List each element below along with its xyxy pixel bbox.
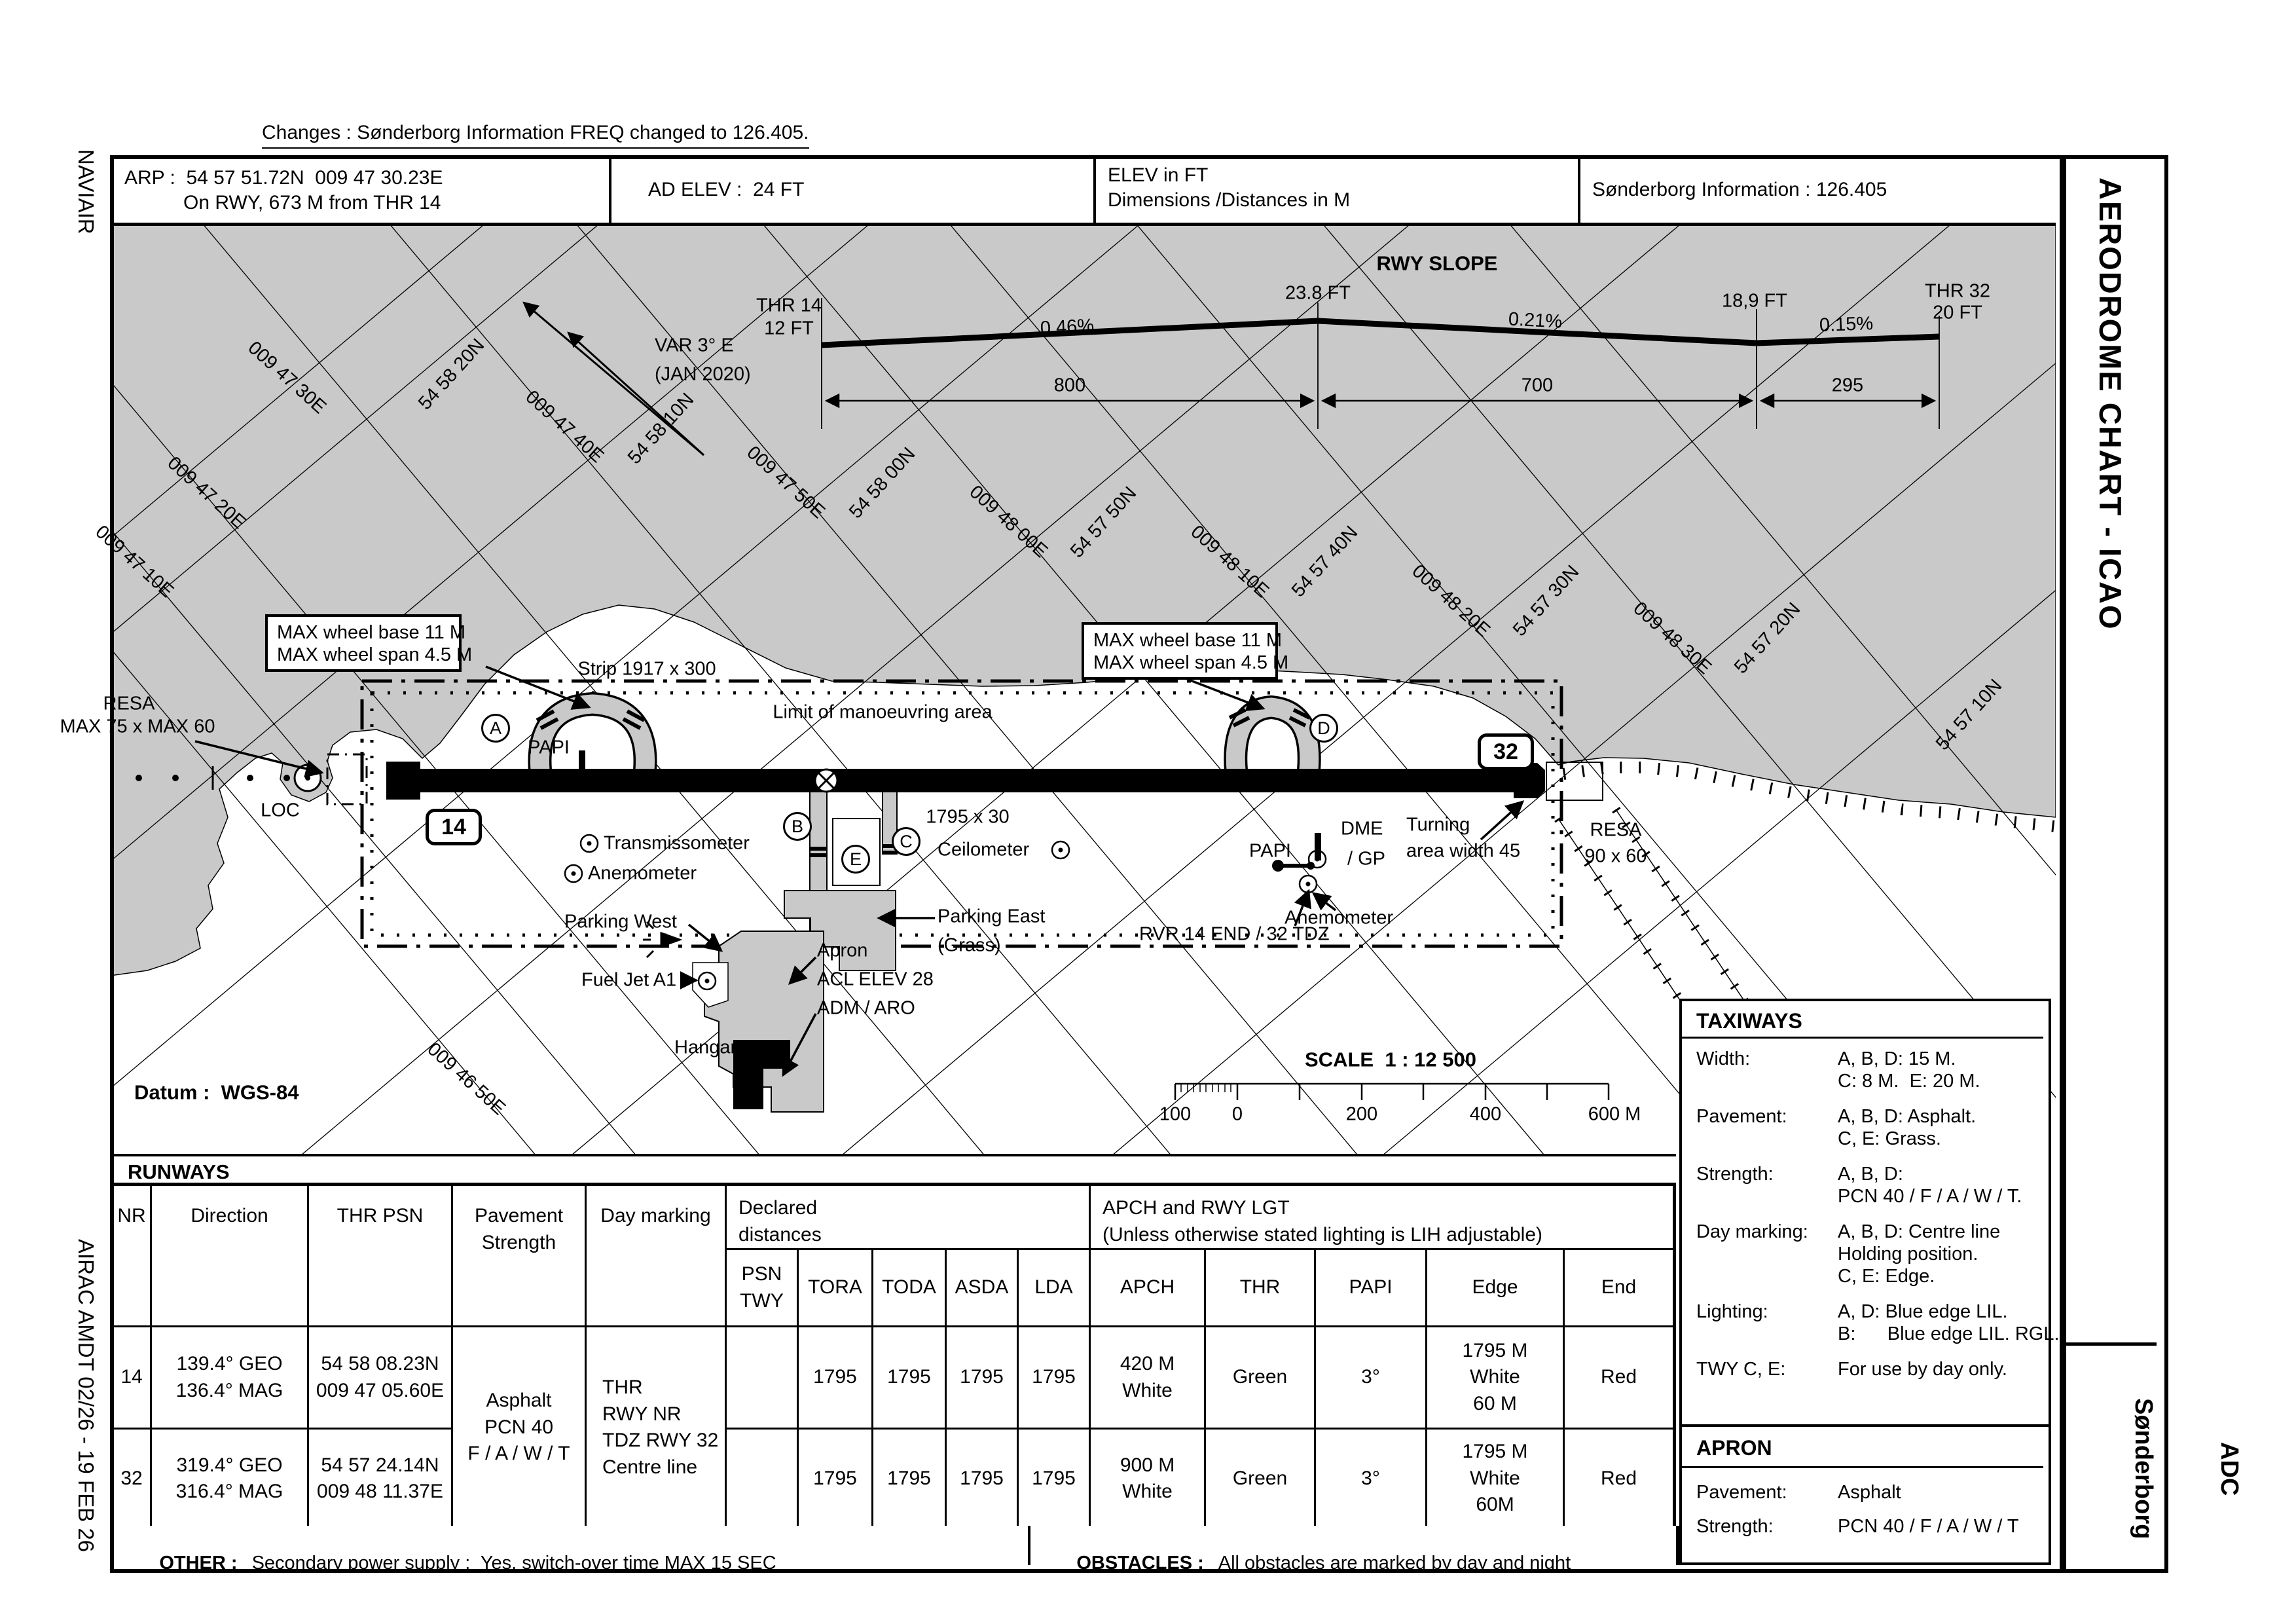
- rwy14-thr: Green: [1205, 1327, 1315, 1429]
- max-wheel-base: MAX wheel base 11 M: [277, 623, 465, 642]
- rwy32-direction: 319.4° GEO316.4° MAG: [151, 1429, 308, 1530]
- right-column-divider: [2066, 1342, 2157, 1346]
- parking-east-label1: Parking East: [938, 908, 1045, 927]
- parking-east-label2: (Grass): [938, 936, 1001, 955]
- taxiways-pavement-label: Pavement:: [1696, 1106, 1787, 1128]
- sub-toda: TODA: [873, 1249, 946, 1327]
- max-wheel-box-east: MAX wheel base 11 M MAX wheel span 4.5 M: [1082, 622, 1278, 680]
- apron-label2: ACL ELEV 28: [817, 970, 934, 989]
- chart-id-line2: ADC: [2214, 1377, 2243, 1560]
- scale-tick-600: 600 M: [1588, 1105, 1641, 1124]
- header-cell-info: Sønderborg Information : 126.405: [1578, 155, 2056, 223]
- apron-label3: ADM / ARO: [817, 999, 915, 1018]
- rwy32-apch: 900 MWhite: [1090, 1429, 1205, 1530]
- rwy14-lda: 1795: [1018, 1327, 1090, 1429]
- slope-grad2: 0.21%: [1508, 310, 1563, 331]
- other-label: OTHER :: [159, 1553, 237, 1574]
- col-declared: Declareddistances: [726, 1185, 1090, 1249]
- changes-note: Changes : Sønderborg Information FREQ ch…: [262, 122, 809, 149]
- taxiways-lighting-1: A, D: Blue edge LIL.: [1838, 1301, 2008, 1323]
- papi-east-label: PAPI: [1249, 842, 1291, 861]
- rwy32-thr: Green: [1205, 1429, 1315, 1530]
- runway-strip: [391, 769, 1514, 792]
- dme-label2: / GP: [1347, 850, 1385, 869]
- slope-dist2: 700: [1522, 377, 1553, 396]
- scale-title: SCALE 1 : 12 500: [1305, 1050, 1476, 1070]
- rwy14-end: Red: [1564, 1327, 1675, 1429]
- chart-id-line3: Sønderborg: [2128, 1377, 2157, 1560]
- taxiways-pavement-2: C, E: Grass.: [1838, 1128, 1941, 1150]
- apron-area: [704, 931, 824, 1112]
- slope-thr14: THR 14: [756, 297, 822, 316]
- rwy32-psn: 54 57 24.14N009 48 11.37E: [308, 1429, 452, 1530]
- units-line1: ELEV in FT: [1108, 164, 1208, 187]
- max-wheel-span: MAX wheel span 4.5 M: [277, 646, 472, 665]
- footer-divider: [1028, 1526, 1030, 1565]
- taxiways-width-label: Width:: [1696, 1048, 1750, 1070]
- taxiways-strength-label: Strength:: [1696, 1164, 1774, 1185]
- runways-table: NR Direction THR PSN PavementStrength Da…: [110, 1183, 1676, 1531]
- resa-east-label1: RESA: [1590, 821, 1642, 840]
- taxiways-lighting-label: Lighting:: [1696, 1301, 1768, 1323]
- taxiways-title-divider: [1682, 1037, 2043, 1039]
- scale-tick-100: 100: [1159, 1105, 1191, 1124]
- scale-bar: [1175, 1084, 1609, 1100]
- taxiways-daymarking-1: A, B, D: Centre line: [1838, 1221, 2000, 1243]
- header-cell-units: ELEV in FT Dimensions /Distances in M: [1093, 155, 1580, 223]
- runway-dim-label: 1795 x 30: [926, 808, 1009, 827]
- resa-east-label2: 90 x 60: [1584, 847, 1647, 866]
- limit-label: Limit of manoeuvring area: [773, 703, 992, 722]
- right-title-column: AERODROME CHART - ICAO AD 2 - EKSB ADC S…: [2062, 155, 2168, 1573]
- sub-thr: THR: [1205, 1249, 1315, 1327]
- max-wheel-box-west: MAX wheel base 11 M MAX wheel span 4.5 M: [265, 614, 462, 672]
- taxiways-title: TAXIWAYS: [1696, 1009, 1802, 1033]
- taxiway-d-loop: [1235, 707, 1309, 770]
- aerodrome-chart-page: ARP : 54 57 51.72N 009 47 30.23E On RWY,…: [0, 0, 2296, 1624]
- thr14-designator: 14: [426, 809, 482, 845]
- max-wheel-span: MAX wheel span 4.5 M: [1093, 654, 1288, 673]
- slope-peak-elev: 23.8 FT: [1285, 284, 1351, 303]
- rwy32-tora: 1795: [798, 1429, 873, 1530]
- rwy32-asda: 1795: [946, 1429, 1018, 1530]
- rwy14-tora: 1795: [798, 1327, 873, 1429]
- sub-apch: APCH: [1090, 1249, 1205, 1327]
- rwy14-psn-twy: [726, 1327, 798, 1429]
- obstacles-text: All obstacles are marked by day and nigh…: [1218, 1553, 1571, 1574]
- resa-west-label2: MAX 75 x MAX 60: [60, 718, 215, 737]
- parking-west-label: Parking West: [564, 913, 677, 932]
- taxiways-width-2: C: 8 M. E: 20 M.: [1838, 1071, 1980, 1092]
- apron-pavement-label: Pavement:: [1696, 1482, 1787, 1504]
- col-pavement: PavementStrength: [452, 1185, 586, 1327]
- airac-vertical: AIRAC AMDT 02/26 - 19 FEB 26: [73, 1239, 98, 1552]
- strip-label: Strip 1917 x 300: [577, 660, 716, 679]
- slope-dist1: 800: [1054, 377, 1085, 396]
- turning-label1: Turning: [1406, 816, 1470, 835]
- col-daymarking: Day marking: [586, 1185, 726, 1327]
- col-nr: NR: [112, 1185, 151, 1327]
- other-cell: OTHER :Secondary power supply : Yes, swi…: [128, 1535, 776, 1592]
- slope-thr32: THR 32: [1925, 282, 1990, 301]
- apron-panel: APRON Pavement: Asphalt Strength: PCN 40…: [1679, 1424, 2051, 1565]
- chart-title-vertical: AERODROME CHART - ICAO: [2092, 177, 2128, 631]
- apron-strength-label: Strength:: [1696, 1516, 1774, 1538]
- var-line1: VAR 3° E: [655, 337, 734, 356]
- rwy14-nr: 14: [112, 1327, 151, 1429]
- resa-right-box: [1546, 762, 1603, 800]
- taxiways-twyce-label: TWY C, E:: [1696, 1359, 1785, 1380]
- header-cell-elev: AD ELEV : 24 FT: [609, 155, 1096, 223]
- chart-id-vertical: AD 2 - EKSB ADC Sønderborg: [2071, 1377, 2296, 1560]
- taxiways-twyce-1: For use by day only.: [1838, 1359, 2007, 1380]
- col-apch-group: APCH and RWY LGT(Unless otherwise stated…: [1090, 1185, 1675, 1249]
- obstacles-cell: OBSTACLES :All obstacles are marked by d…: [1045, 1535, 1571, 1592]
- naviair-vertical: NAVIAIR: [73, 149, 98, 234]
- taxiway-d-badge: D: [1309, 714, 1338, 743]
- papi-bar-west: [579, 750, 585, 777]
- slope-mid-elev: 18,9 FT: [1722, 292, 1787, 311]
- anemometer-west-label: Anemometer: [588, 864, 697, 883]
- col-direction: Direction: [151, 1185, 308, 1327]
- crossed-circle-symbol: [815, 769, 837, 792]
- var-line2: (JAN 2020): [655, 365, 751, 384]
- header-cell-arp: ARP : 54 57 51.72N 009 47 30.23E On RWY,…: [110, 155, 611, 223]
- rwy32-lda: 1795: [1018, 1429, 1090, 1530]
- obstacles-label: OBSTACLES :: [1076, 1553, 1203, 1574]
- taxiways-width-1: A, B, D: 15 M.: [1838, 1048, 1956, 1070]
- loc-label: LOC: [261, 802, 300, 821]
- runways-title-band: RUNWAYS: [110, 1154, 1676, 1185]
- fuel-label: Fuel Jet A1: [581, 971, 676, 990]
- pavement-shared: AsphaltPCN 40 F / A / W / T: [452, 1327, 586, 1530]
- taxiways-strength-1: A, B, D:: [1838, 1164, 1903, 1185]
- rwy32-toda: 1795: [873, 1429, 946, 1530]
- papi-west-label: PAPI: [528, 739, 570, 758]
- rwy14-edge: 1795 MWhite 60 M: [1427, 1327, 1564, 1429]
- daymarking-shared: THRRWY NR TDZ RWY 32Centre line: [586, 1327, 726, 1530]
- transmissometer-label: Transmissometer: [604, 834, 750, 853]
- rwy32-edge: 1795 MWhite 60M: [1427, 1429, 1564, 1530]
- taxiways-lighting-2: B: Blue edge LIL. RGL.: [1838, 1323, 2060, 1345]
- taxiways-panel: TAXIWAYS Width: A, B, D: 15 M. C: 8 M. E…: [1679, 999, 2051, 1430]
- taxiways-strength-2: PCN 40 / F / A / W / T.: [1838, 1186, 2022, 1208]
- taxiways-daymarking-label: Day marking:: [1696, 1221, 1808, 1243]
- apron-label1: Apron: [817, 942, 867, 961]
- units-line2: Dimensions /Distances in M: [1108, 189, 1350, 212]
- resa-west-label1: RESA: [103, 695, 155, 714]
- slope-thr32-elev: 20 FT: [1933, 304, 1982, 323]
- rwy32-papi: 3°: [1315, 1429, 1427, 1530]
- sub-edge: Edge: [1427, 1249, 1564, 1327]
- taxiways-daymarking-3: C, E: Edge.: [1838, 1266, 1935, 1287]
- datum-label: Datum : WGS-84: [134, 1082, 299, 1103]
- arp-line1: ARP : 54 57 51.72N 009 47 30.23E: [124, 167, 443, 189]
- thr32-designator: 32: [1478, 733, 1534, 770]
- sub-asda: ASDA: [946, 1249, 1018, 1327]
- rwy14-papi: 3°: [1315, 1327, 1427, 1429]
- taxiway-c-badge: C: [892, 827, 920, 856]
- scale-tick-200: 200: [1346, 1105, 1377, 1124]
- rwy14-asda: 1795: [946, 1327, 1018, 1429]
- col-thr-psn: THR PSN: [308, 1185, 452, 1327]
- turning-label2: area width 45: [1406, 842, 1520, 861]
- slope-dist3: 295: [1832, 377, 1863, 396]
- slope-title: RWY SLOPE: [1377, 253, 1498, 274]
- rwy14-toda: 1795: [873, 1327, 946, 1429]
- ceilometer-label: Ceilometer: [938, 841, 1029, 860]
- rwy32-nr: 32: [112, 1429, 151, 1530]
- other-text: Secondary power supply : Yes, switch-ove…: [252, 1553, 776, 1574]
- taxiways-pavement-1: A, B, D: Asphalt.: [1838, 1106, 1976, 1128]
- apron-title-divider: [1682, 1466, 2043, 1468]
- rwy14-direction: 139.4° GEO136.4° MAG: [151, 1327, 308, 1429]
- slope-grad3: 0.15%: [1819, 314, 1873, 335]
- apron-pavement-value: Asphalt: [1838, 1482, 1901, 1504]
- sub-end: End: [1564, 1249, 1675, 1327]
- slope-thr14-elev: 12 FT: [764, 320, 814, 339]
- rwy14-psn: 54 58 08.23N009 47 05.60E: [308, 1327, 452, 1429]
- arp-line2: On RWY, 673 M from THR 14: [183, 192, 441, 214]
- sub-psn-twy: PSNTWY: [726, 1249, 798, 1327]
- footer-band: OTHER :Secondary power supply : Yes, swi…: [110, 1526, 1679, 1565]
- taxiways-daymarking-2: Holding position.: [1838, 1244, 1978, 1265]
- ad-elev: AD ELEV : 24 FT: [648, 179, 804, 201]
- slope-grad1: 0.46%: [1040, 316, 1095, 338]
- rwy32-psn-twy: [726, 1429, 798, 1530]
- papi-bar-east: [1315, 833, 1321, 860]
- sub-lda: LDA: [1018, 1249, 1090, 1327]
- scale-tick-0: 0: [1232, 1105, 1243, 1124]
- apron-title: APRON: [1696, 1436, 1772, 1460]
- freq-info: Sønderborg Information : 126.405: [1592, 179, 1887, 201]
- header-row: ARP : 54 57 51.72N 009 47 30.23E On RWY,…: [110, 155, 2056, 226]
- sub-tora: TORA: [798, 1249, 873, 1327]
- max-wheel-base: MAX wheel base 11 M: [1093, 631, 1282, 650]
- runways-title: RUNWAYS: [128, 1162, 230, 1182]
- scale-tick-400: 400: [1470, 1105, 1501, 1124]
- sub-papi: PAPI: [1315, 1249, 1427, 1327]
- hangar-label: Hangar: [674, 1039, 737, 1058]
- taxiway-b-badge: B: [783, 812, 812, 841]
- taxiway-a-badge: A: [481, 714, 510, 743]
- dme-label1: DME: [1341, 820, 1383, 839]
- rvr-label: RVR 14 END / 32 TDZ: [1139, 925, 1330, 944]
- taxiway-e-badge: E: [841, 845, 870, 874]
- apron-strength-value: PCN 40 / F / A / W / T: [1838, 1516, 2019, 1538]
- rwy32-end: Red: [1564, 1429, 1675, 1530]
- rwy14-apch: 420 MWhite: [1090, 1327, 1205, 1429]
